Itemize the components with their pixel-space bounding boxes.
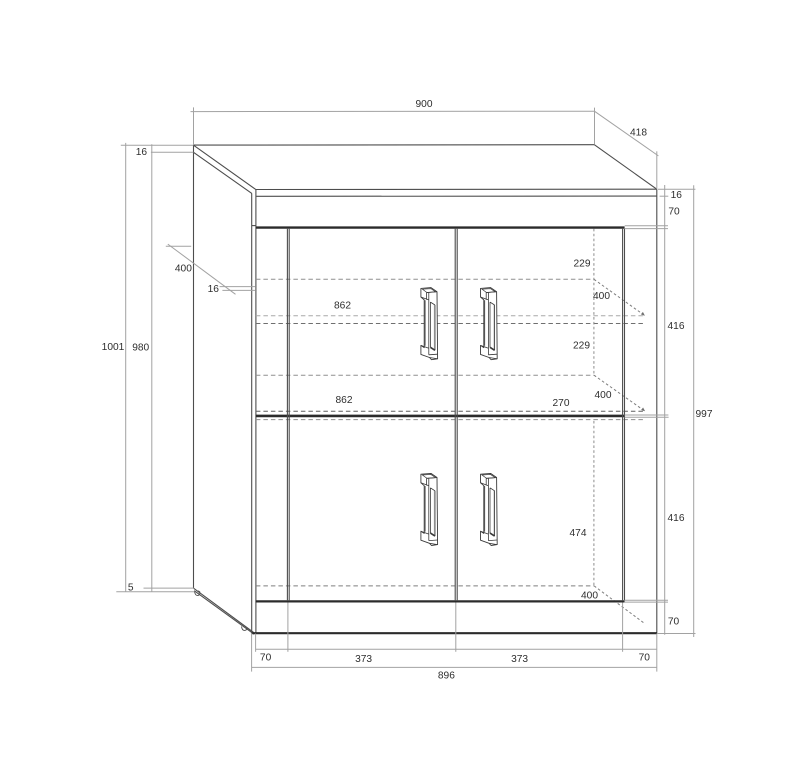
- svg-text:70: 70: [260, 653, 272, 664]
- svg-text:70: 70: [668, 207, 680, 218]
- svg-text:229: 229: [573, 341, 590, 352]
- svg-text:900: 900: [416, 99, 433, 110]
- svg-text:418: 418: [630, 128, 647, 139]
- svg-text:997: 997: [696, 409, 713, 420]
- svg-text:400: 400: [175, 264, 192, 275]
- svg-text:373: 373: [355, 654, 372, 665]
- svg-text:400: 400: [581, 591, 598, 602]
- svg-text:5: 5: [128, 583, 134, 594]
- svg-text:16: 16: [208, 284, 220, 295]
- svg-text:16: 16: [136, 147, 148, 158]
- svg-text:980: 980: [132, 343, 149, 354]
- svg-text:270: 270: [553, 398, 570, 409]
- svg-text:16: 16: [671, 190, 683, 201]
- svg-text:400: 400: [593, 291, 610, 302]
- svg-text:862: 862: [334, 301, 351, 312]
- svg-text:373: 373: [511, 654, 528, 665]
- svg-text:70: 70: [668, 617, 680, 628]
- svg-text:862: 862: [336, 395, 353, 406]
- svg-text:1001: 1001: [102, 342, 125, 353]
- svg-text:70: 70: [639, 653, 651, 664]
- svg-text:416: 416: [668, 513, 685, 524]
- svg-text:416: 416: [668, 321, 685, 332]
- svg-text:896: 896: [438, 670, 455, 681]
- svg-text:474: 474: [570, 528, 587, 539]
- svg-text:400: 400: [595, 390, 612, 401]
- svg-text:229: 229: [574, 259, 591, 270]
